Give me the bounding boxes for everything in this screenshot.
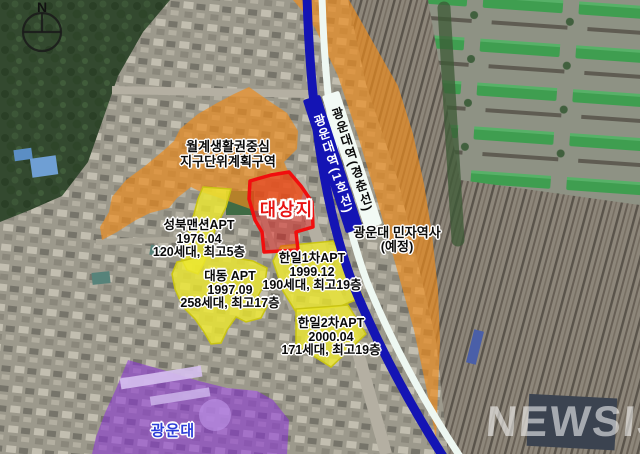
road — [112, 90, 308, 94]
private-station-name: 광운대 민자역사 — [353, 226, 440, 240]
teal-roof-building — [91, 271, 110, 285]
campus-plaza — [199, 399, 231, 431]
north-compass: N — [14, 0, 70, 61]
apartment-detail: 120세대, 최고5층 — [153, 246, 245, 260]
apartment-label-hanil1: 한일1차APT 1999.12 190세대, 최고19층 — [262, 252, 361, 293]
blue-roof-building — [30, 155, 58, 177]
apartment-label-hanil2: 한일2차APT 2000.04 171세대, 최고19층 — [281, 317, 380, 358]
satellite-basemap — [0, 0, 640, 454]
apartment-name: 성북맨션APT — [153, 219, 245, 233]
district-zone-label-line1: 월계생활권중심 — [180, 139, 276, 154]
private-station-label: 광운대 민자역사 (예정) — [353, 226, 440, 254]
apartment-date: 2000.04 — [281, 330, 380, 344]
apartment-detail: 258세대, 최고17층 — [180, 297, 279, 311]
district-zone-label: 월계생활권중심 지구단위계획구역 — [180, 139, 276, 169]
satellite-map: 광운대역(1호선) 광운대역(경춘선) 월계생활권중심 지구단위계획구역 대상지… — [0, 0, 640, 454]
target-site-label: 대상지 — [260, 203, 314, 217]
apartment-detail: 171세대, 최고19층 — [281, 344, 380, 358]
apartment-date: 1976.04 — [153, 232, 245, 246]
apartment-name: 한일1차APT — [262, 252, 361, 266]
apartment-label-seongbuk: 성북맨션APT 1976.04 120세대, 최고5층 — [153, 219, 245, 260]
apartment-date: 1999.12 — [262, 265, 361, 279]
university-label: 광운대 — [151, 424, 195, 438]
apartment-detail: 190세대, 최고19층 — [262, 279, 361, 293]
apartment-name: 한일2차APT — [281, 317, 380, 331]
compass-north-letter: N — [37, 0, 47, 15]
newsis-watermark: NEWSIS — [484, 398, 640, 447]
district-zone-label-line2: 지구단위계획구역 — [180, 154, 276, 169]
private-station-status: (예정) — [353, 240, 440, 254]
